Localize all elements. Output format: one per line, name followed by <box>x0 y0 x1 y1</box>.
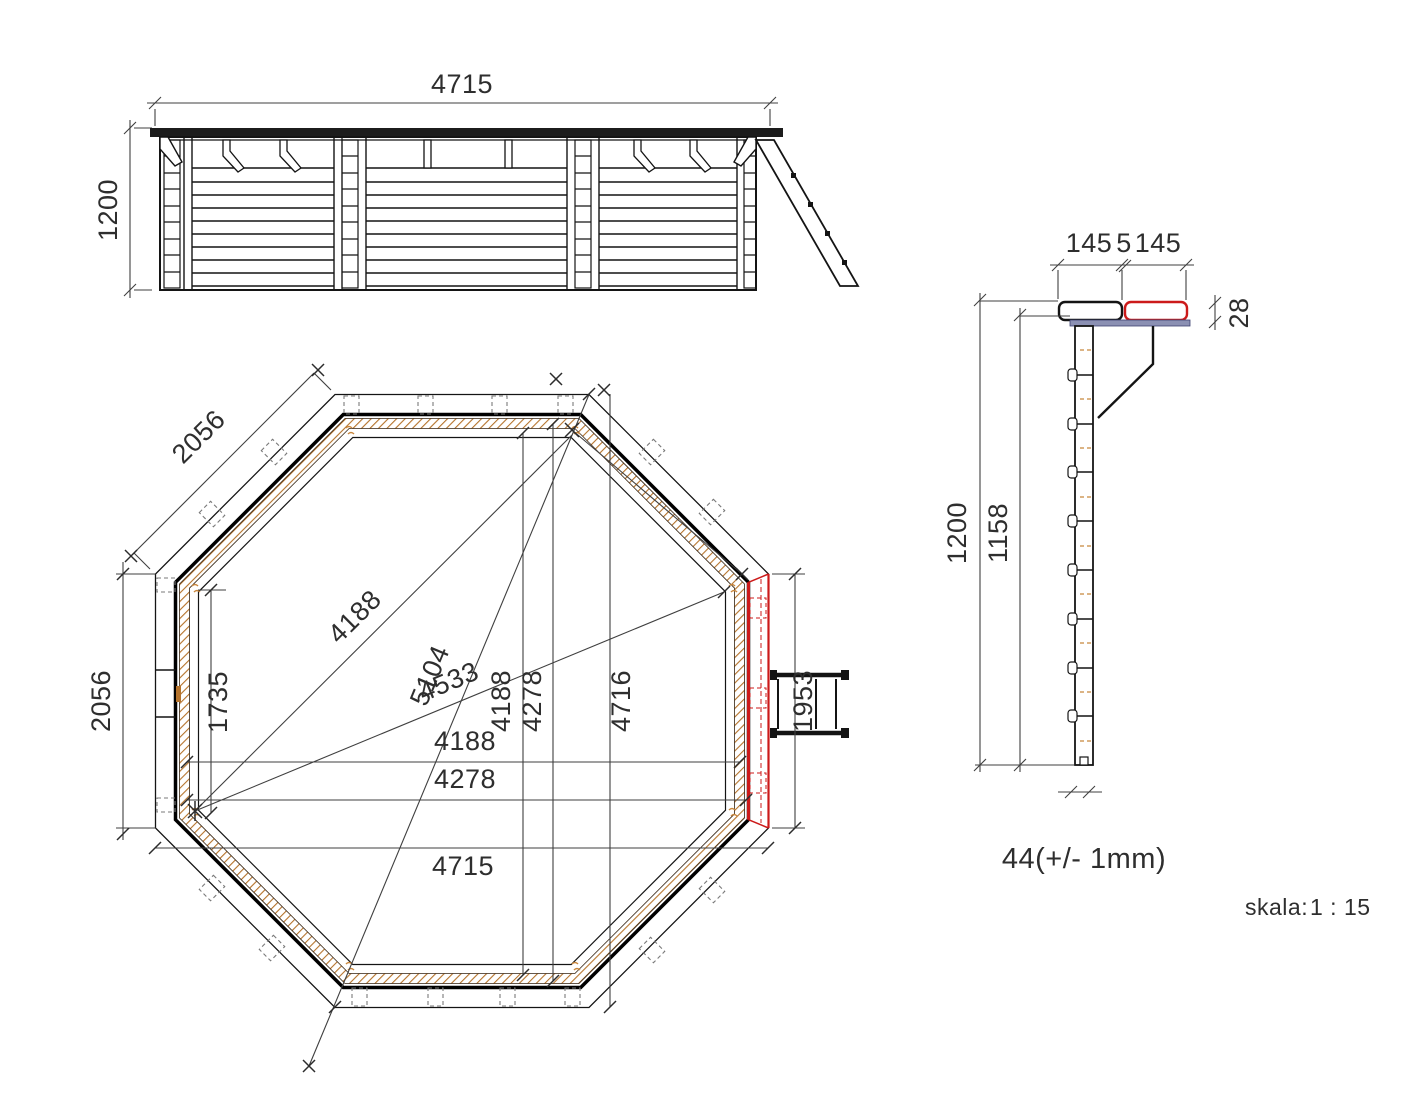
plan-dim-horiz-b: 4278 <box>434 764 496 794</box>
section-top-dim <box>1050 259 1194 300</box>
section-brace <box>1098 326 1153 418</box>
section-height-total: 1200 <box>942 502 972 564</box>
elevation-top-rail <box>150 128 783 137</box>
plan-dim-side-diagonal: 2056 <box>166 404 231 469</box>
plan-dim-ladder-panel: 1953 <box>788 670 818 732</box>
section-cap-thickness-dim <box>1209 295 1221 330</box>
scale-label: skala: <box>1245 894 1308 920</box>
section-cap-gap-dim: 5 <box>1116 228 1132 258</box>
section-cap-left-dim: 145 <box>1066 228 1113 258</box>
plan-dim-vert-b: 4278 <box>517 670 547 732</box>
plan-dim-left-inner: 1735 <box>203 671 233 733</box>
scale-value: 1 : 15 <box>1310 894 1371 920</box>
section-cap-thickness: 28 <box>1224 297 1254 328</box>
section-height-wall: 1158 <box>983 503 1013 563</box>
section-plank-thickness: 44(+/- 1mm) <box>1002 843 1166 875</box>
section-cap-board-left <box>1059 302 1122 320</box>
section-view: 145 5 145 28 <box>942 228 1254 875</box>
plan-left-joints <box>156 670 176 717</box>
elevation-body <box>160 137 756 290</box>
plan-dim-side-left: 2056 <box>86 670 116 732</box>
elevation-view: 4715 1200 <box>93 69 858 298</box>
section-plank-dim <box>1058 786 1102 798</box>
elevation-height-dim: 1200 <box>93 179 123 241</box>
plan-red-panel <box>749 574 769 828</box>
plan-view: 2056 2056 1735 4188 5104 4533 4188 4278 … <box>86 364 849 1072</box>
hanger-tab <box>505 140 512 168</box>
section-cap-right-dim: 145 <box>1135 228 1182 258</box>
section-wall <box>1068 326 1153 765</box>
elevation-left-trim <box>160 137 182 166</box>
elevation-ladder <box>756 140 858 286</box>
scale-note: skala: 1 : 15 <box>1245 894 1371 920</box>
plan-dim-vert-a: 4188 <box>486 670 516 732</box>
plan-dim-horiz-outer: 4715 <box>432 851 494 881</box>
pool-technical-drawing: 4715 1200 <box>0 0 1422 1100</box>
drawing-sheet: 4715 1200 <box>0 0 1422 1100</box>
elevation-dim-lines <box>124 97 778 298</box>
plan-dim-diag-inner: 4188 <box>322 584 387 649</box>
hanger-tab <box>424 140 431 168</box>
elevation-width-dim: 4715 <box>431 69 493 99</box>
plan-dim-vert-outer: 4716 <box>606 670 636 732</box>
plan-dim-horiz-a: 4188 <box>434 726 496 756</box>
section-cap-board-right <box>1125 302 1187 320</box>
